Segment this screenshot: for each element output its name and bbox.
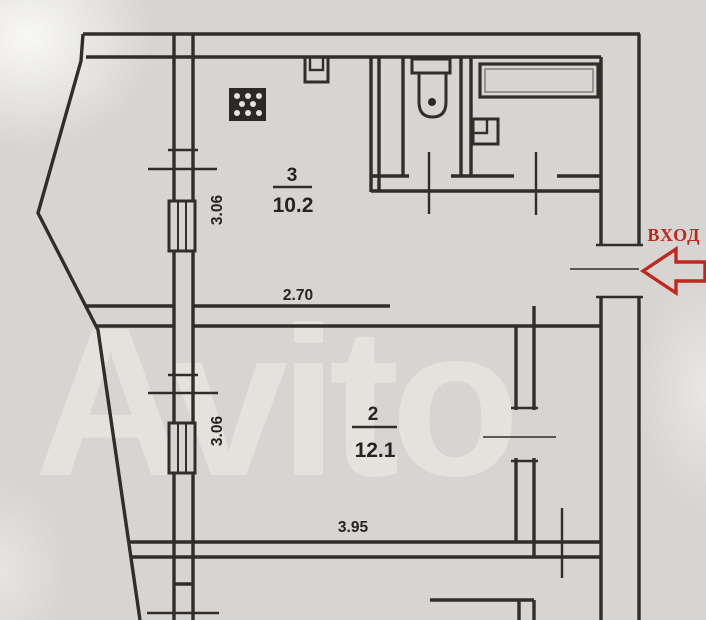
room2-door-opening (483, 408, 556, 461)
room2-area: 12.1 (355, 439, 396, 462)
bathtub-icon (480, 64, 598, 97)
room2-right-wall (483, 306, 556, 558)
dimension-room2-top: 2.70 (283, 287, 313, 304)
sink-icon (473, 119, 498, 144)
bottom-cutoff-walls (430, 600, 534, 620)
dimension-left-upper: 3.06 (209, 195, 226, 226)
window-lower-icon (169, 423, 195, 473)
entrance-label: ВХОД (647, 225, 700, 245)
room3-number: 3 (287, 165, 298, 186)
entrance-door-opening (570, 245, 643, 297)
room3-area: 10.2 (273, 194, 314, 217)
dimension-left-lower: 3.06 (209, 416, 226, 447)
room3-label: 3 10.2 (273, 165, 314, 217)
window-upper-icon (169, 201, 195, 251)
entrance-arrow-icon (643, 249, 705, 293)
stove-icon (229, 88, 266, 121)
floor-plan-drawing: ВХОД 3 10.2 2 12.1 3.06 3.06 2.70 3.95 (0, 0, 706, 620)
vent-icon (305, 57, 328, 82)
floor-plan: Avito (0, 0, 706, 620)
room2-label: 2 12.1 (352, 404, 397, 462)
room2-number: 2 (368, 404, 379, 425)
dimension-room2-bottom: 3.95 (338, 519, 369, 536)
bathroom-walls (371, 57, 601, 215)
toilet-icon (412, 59, 450, 117)
room2-top-wall (86, 306, 601, 326)
